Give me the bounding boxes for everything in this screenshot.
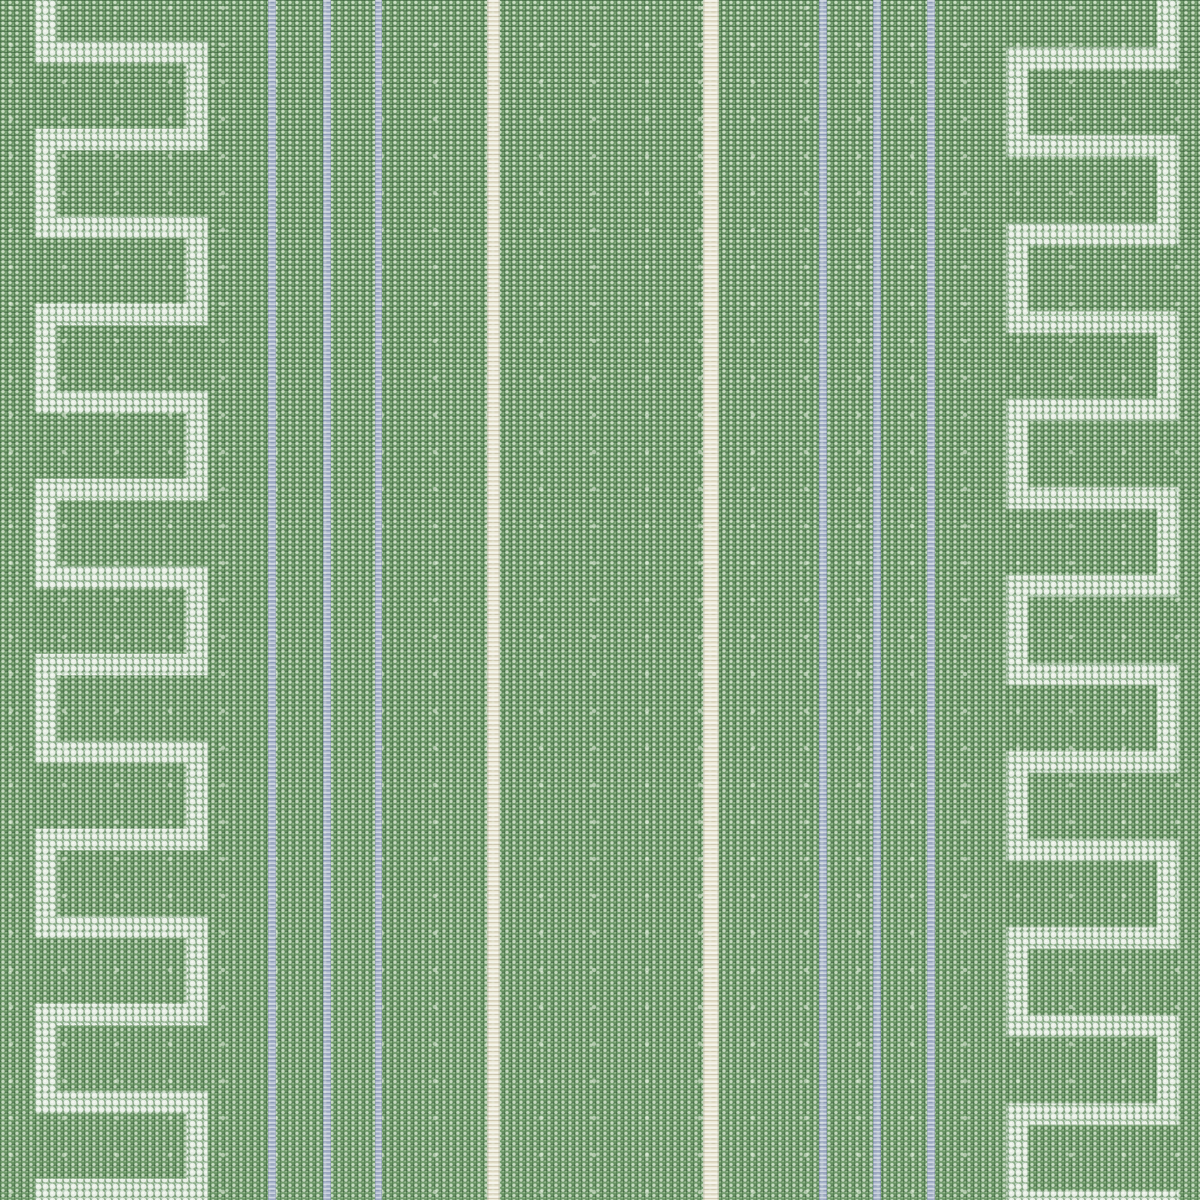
fabric-stripe-cream — [703, 0, 719, 1200]
fabric-stripe-blue — [927, 0, 935, 1200]
fabric-weave-texture — [0, 0, 1200, 1200]
fabric-stripe-blue — [819, 0, 827, 1200]
fabric-stripe-blue — [268, 0, 276, 1200]
fabric-stripe-blue — [375, 0, 382, 1200]
fabric-stripe-blue — [323, 0, 331, 1200]
fabric-swatch — [0, 0, 1200, 1200]
fabric-stripe-cream — [487, 0, 500, 1200]
fabric-stripe-blue — [873, 0, 881, 1200]
